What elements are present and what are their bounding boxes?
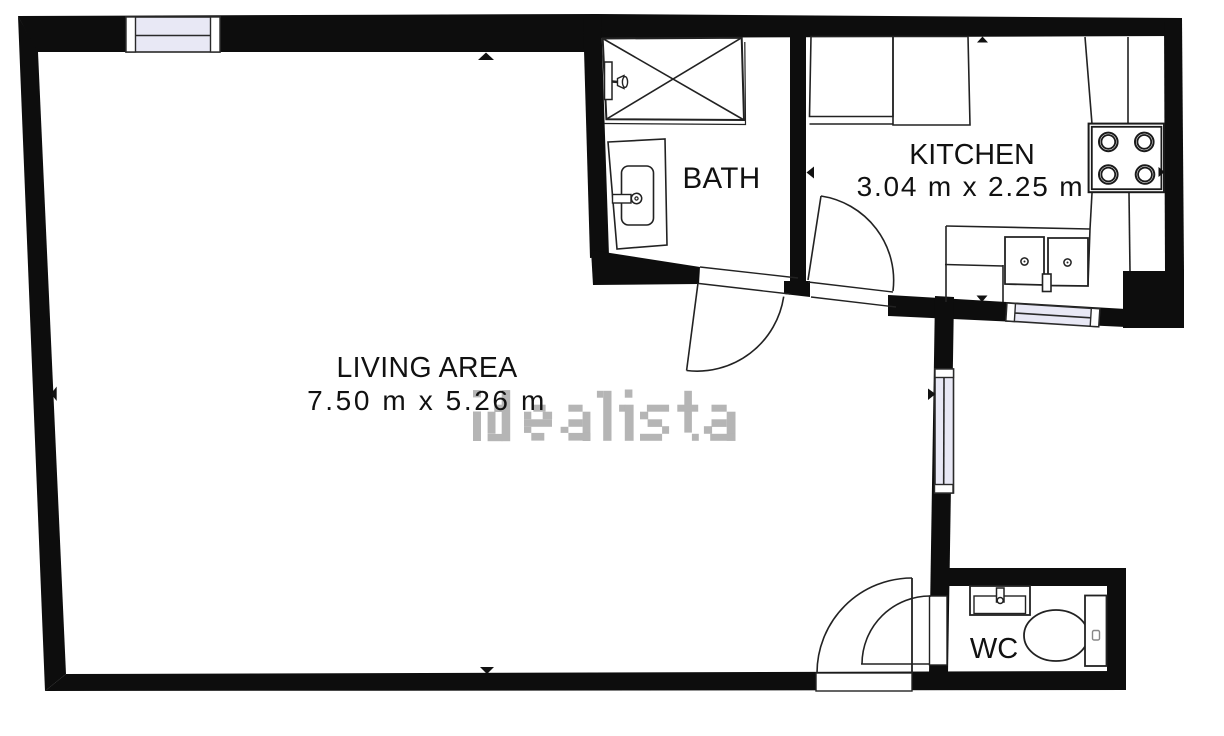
- svg-text:BATH: BATH: [682, 162, 760, 195]
- svg-text:WC: WC: [970, 633, 1018, 665]
- svg-text:7.50 m x 5.26 m: 7.50 m x 5.26 m: [307, 385, 547, 416]
- svg-text:LIVING AREA: LIVING AREA: [336, 352, 517, 384]
- svg-text:3.04 m x 2.25 m: 3.04 m x 2.25 m: [857, 171, 1085, 202]
- svg-text:KITCHEN: KITCHEN: [909, 139, 1035, 171]
